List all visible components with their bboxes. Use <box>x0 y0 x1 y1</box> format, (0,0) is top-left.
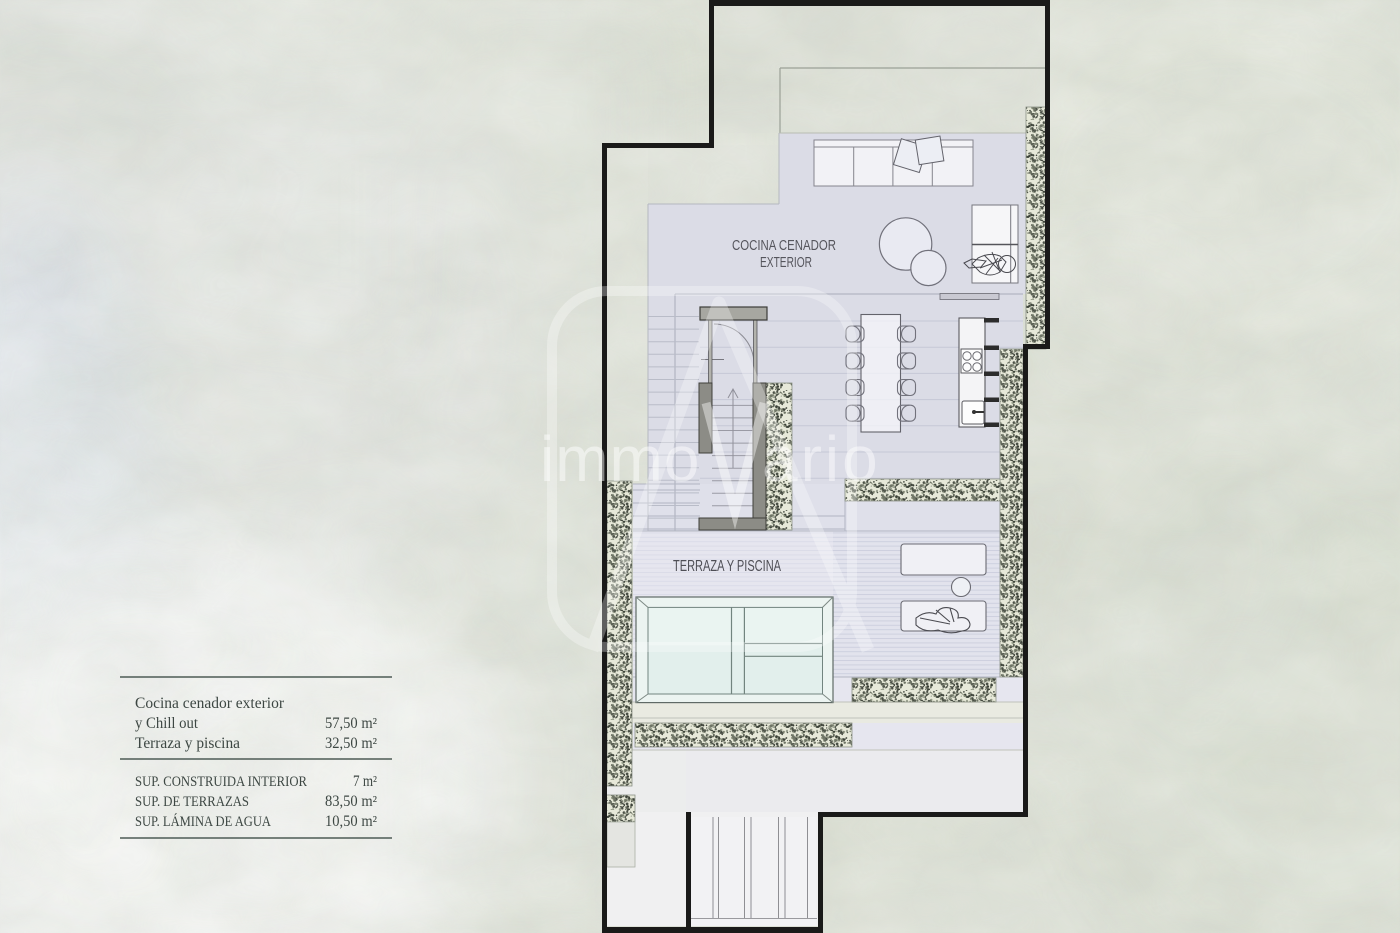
svg-text:immo: immo <box>540 423 700 495</box>
svg-text:83,50 m²: 83,50 m² <box>325 793 377 810</box>
svg-text:TERRAZA Y PISCINA: TERRAZA Y PISCINA <box>673 558 781 575</box>
svg-text:Terraza y piscina: Terraza y piscina <box>135 735 240 752</box>
svg-text:SUP. CONSTRUIDA INTERIOR: SUP. CONSTRUIDA INTERIOR <box>135 774 307 790</box>
svg-text:ario: ario <box>762 423 881 495</box>
svg-text:SUP. LÁMINA DE AGUA: SUP. LÁMINA DE AGUA <box>135 813 271 830</box>
svg-text:SUP. DE TERRAZAS: SUP. DE TERRAZAS <box>135 794 249 810</box>
svg-text:EXTERIOR: EXTERIOR <box>760 254 812 271</box>
svg-text:10,50 m²: 10,50 m² <box>325 813 377 830</box>
svg-text:57,50 m²: 57,50 m² <box>325 715 377 732</box>
svg-text:COCINA CENADOR: COCINA CENADOR <box>732 237 836 254</box>
svg-text:y Chill out: y Chill out <box>135 715 199 732</box>
svg-text:Cocina cenador exterior: Cocina cenador exterior <box>135 695 285 712</box>
svg-text:7 m²: 7 m² <box>353 773 377 790</box>
svg-text:32,50 m²: 32,50 m² <box>325 735 377 752</box>
